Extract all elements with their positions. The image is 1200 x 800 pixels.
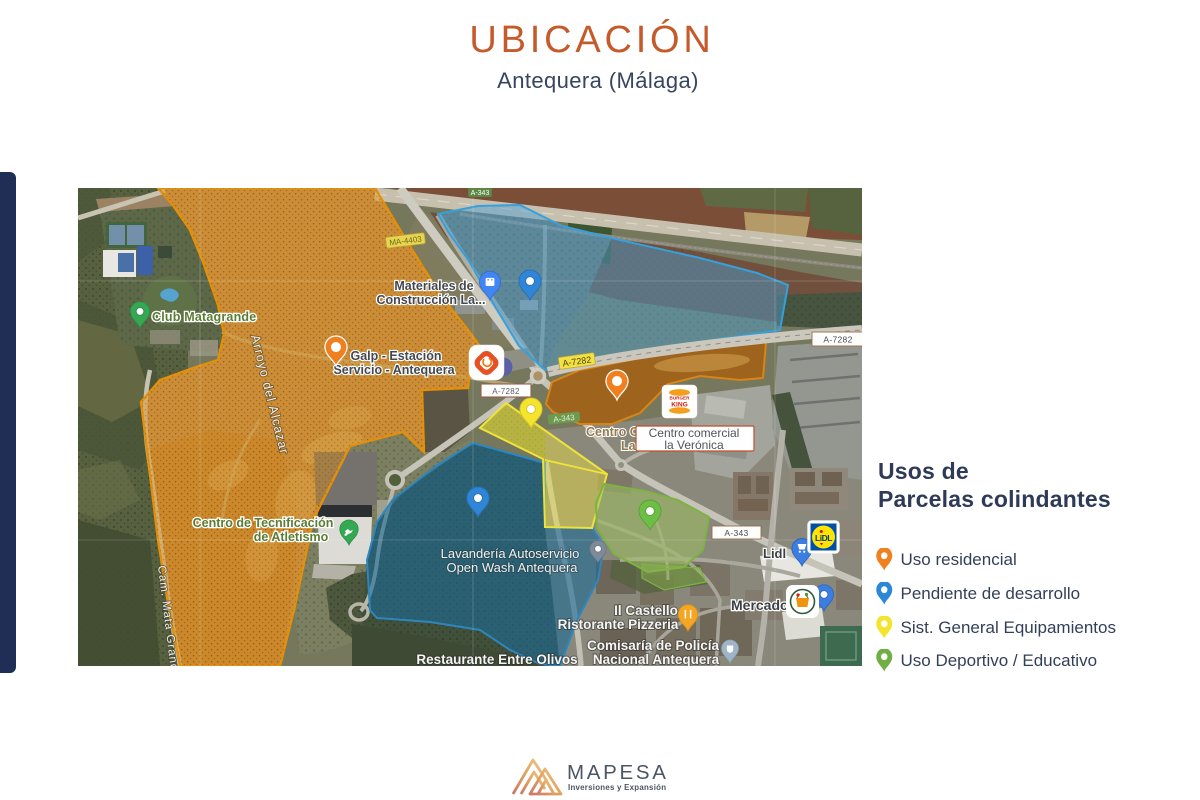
svg-text:A-7282: A-7282 [823,335,852,345]
svg-text:Open Wash Antequera: Open Wash Antequera [446,560,578,575]
svg-text:Centro de Tecnificación: Centro de Tecnificación [193,516,334,530]
svg-text:Servicio - Antequera: Servicio - Antequera [333,363,455,377]
svg-text:MAPESA: MAPESA [567,761,669,784]
svg-text:Mercado: Mercado [731,597,789,613]
svg-text:Construcción La...: Construcción La... [376,293,485,307]
svg-text:Materiales de: Materiales de [394,279,473,293]
svg-text:Club Matagrande: Club Matagrande [152,310,256,324]
svg-text:la Verónica: la Verónica [664,438,724,452]
svg-text:Lavandería Autoservicio: Lavandería Autoservicio [441,546,580,561]
svg-text:Lidl: Lidl [763,546,786,561]
svg-text:Inversiones y Expansión: Inversiones y Expansión [568,783,666,792]
svg-text:A-7282: A-7282 [492,387,520,396]
svg-text:Ristorante Pizzeria: Ristorante Pizzeria [558,617,679,632]
svg-text:Galp - Estación: Galp - Estación [351,349,442,363]
svg-text:LiDL: LiDL [815,533,832,543]
svg-text:La: La [621,439,637,453]
svg-text:Nacional Antequera: Nacional Antequera [593,652,720,666]
svg-text:Comisaría de Policía: Comisaría de Policía [587,638,720,653]
svg-text:A-343: A-343 [724,528,748,538]
svg-text:Centro C: Centro C [586,425,639,439]
svg-text:Restaurante Entre Olivos: Restaurante Entre Olivos [416,652,577,666]
svg-text:Il Castello: Il Castello [614,603,678,618]
svg-text:BURGER: BURGER [670,396,691,401]
svg-text:de Atletismo: de Atletismo [254,530,329,544]
svg-text:A-343: A-343 [471,190,490,197]
